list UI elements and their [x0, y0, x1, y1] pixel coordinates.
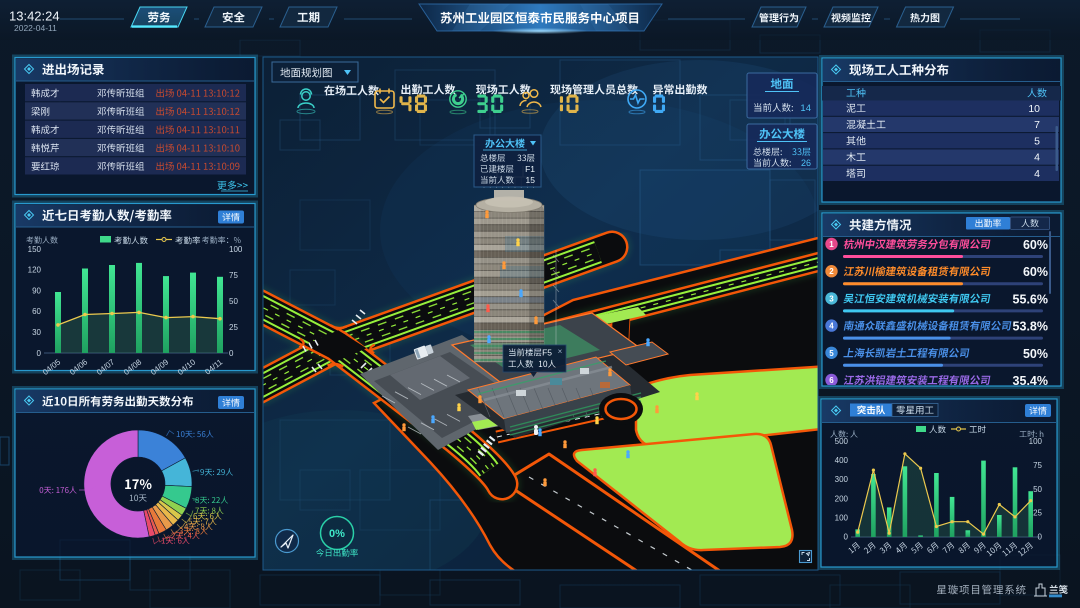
svg-text:14: 14 — [800, 103, 811, 114]
svg-text:0: 0 — [1038, 533, 1043, 542]
svg-text:1: 1 — [829, 240, 834, 249]
svg-text:2022-04-11: 2022-04-11 — [14, 23, 57, 33]
svg-text:53.8%: 53.8% — [1013, 320, 1048, 334]
svg-text:55.6%: 55.6% — [1013, 292, 1048, 306]
svg-text:120: 120 — [28, 266, 42, 275]
svg-text:75: 75 — [229, 271, 238, 280]
svg-text:2: 2 — [829, 267, 834, 276]
svg-text:100: 100 — [835, 513, 849, 522]
svg-text:0: 0 — [229, 349, 234, 358]
svg-text:15: 15 — [526, 175, 536, 185]
svg-text:50: 50 — [229, 297, 238, 306]
svg-text:4: 4 — [1034, 152, 1040, 164]
svg-text:100: 100 — [229, 245, 243, 254]
svg-text:25: 25 — [1033, 509, 1042, 518]
svg-text:500: 500 — [835, 437, 849, 446]
svg-text:400: 400 — [835, 456, 849, 465]
svg-text:60: 60 — [32, 307, 41, 316]
svg-text:150: 150 — [28, 245, 42, 254]
svg-text:10: 10 — [1028, 103, 1040, 115]
svg-text:×: × — [558, 347, 563, 356]
svg-text:5: 5 — [1034, 135, 1040, 147]
svg-text:75: 75 — [1033, 461, 1042, 470]
svg-text:100: 100 — [1029, 437, 1043, 446]
svg-text:6: 6 — [829, 376, 834, 385]
svg-text:50%: 50% — [1023, 347, 1048, 361]
svg-text:50: 50 — [1033, 485, 1042, 494]
svg-text:F1: F1 — [525, 164, 535, 174]
svg-text:7: 7 — [1034, 119, 1040, 131]
svg-text:4: 4 — [829, 322, 834, 331]
svg-text:30: 30 — [32, 328, 41, 337]
svg-text:3: 3 — [829, 294, 834, 303]
svg-text:25: 25 — [229, 323, 238, 332]
svg-text:0: 0 — [37, 349, 42, 358]
svg-text:F5: F5 — [542, 348, 552, 358]
svg-text:5: 5 — [829, 349, 834, 358]
svg-text:90: 90 — [32, 286, 41, 295]
svg-text:4: 4 — [1034, 168, 1040, 180]
svg-text:200: 200 — [835, 494, 849, 503]
svg-text:0: 0 — [844, 533, 849, 542]
svg-text:0%: 0% — [329, 528, 345, 540]
svg-text:13:42:24: 13:42:24 — [9, 9, 60, 24]
svg-text:60%: 60% — [1023, 238, 1048, 252]
svg-text:60%: 60% — [1023, 265, 1048, 279]
svg-text:300: 300 — [835, 475, 849, 484]
svg-text:26: 26 — [801, 158, 811, 168]
